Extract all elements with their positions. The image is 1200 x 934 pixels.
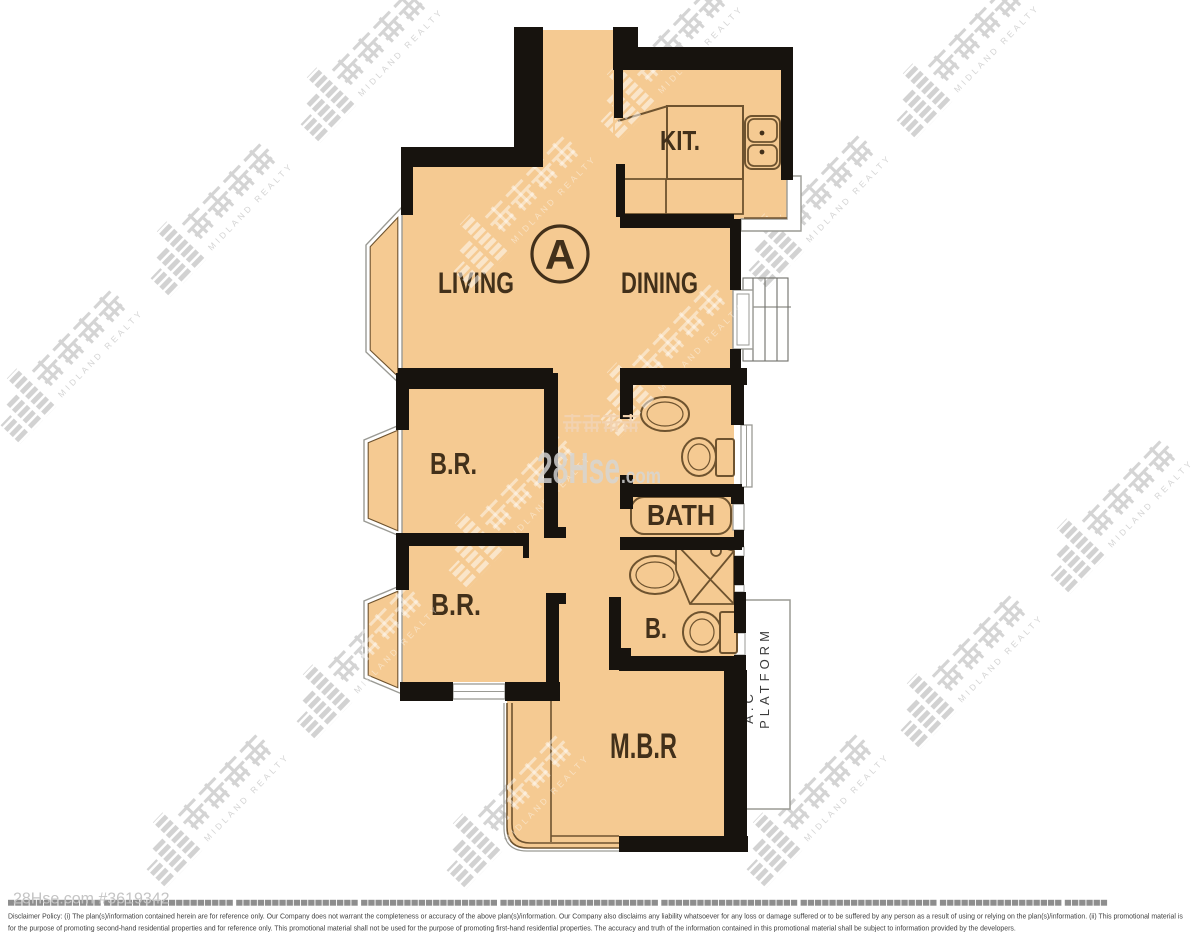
- svg-text:M.B.R: M.B.R: [610, 727, 677, 766]
- svg-text:B.: B.: [645, 613, 667, 645]
- svg-text:for the purpose of promoting s: for the purpose of promoting second-hand…: [8, 926, 1016, 933]
- svg-text:Disclaimer Policy: (i) The pla: Disclaimer Policy: (i) The plan(s)/infor…: [8, 914, 1183, 921]
- svg-text:KIT.: KIT.: [660, 125, 700, 156]
- svg-text:.com: .com: [621, 465, 661, 488]
- svg-text:28Hse: 28Hse: [537, 444, 620, 493]
- svg-text:B.R.: B.R.: [431, 587, 481, 622]
- svg-text:B.R.: B.R.: [430, 446, 477, 481]
- svg-text:28Hse.com #3619342: 28Hse.com #3619342: [13, 891, 170, 908]
- svg-text:DINING: DINING: [621, 267, 698, 300]
- svg-text:BATH: BATH: [647, 500, 715, 532]
- svg-text:A: A: [545, 231, 575, 278]
- svg-text:PLATFORM: PLATFORM: [757, 627, 772, 729]
